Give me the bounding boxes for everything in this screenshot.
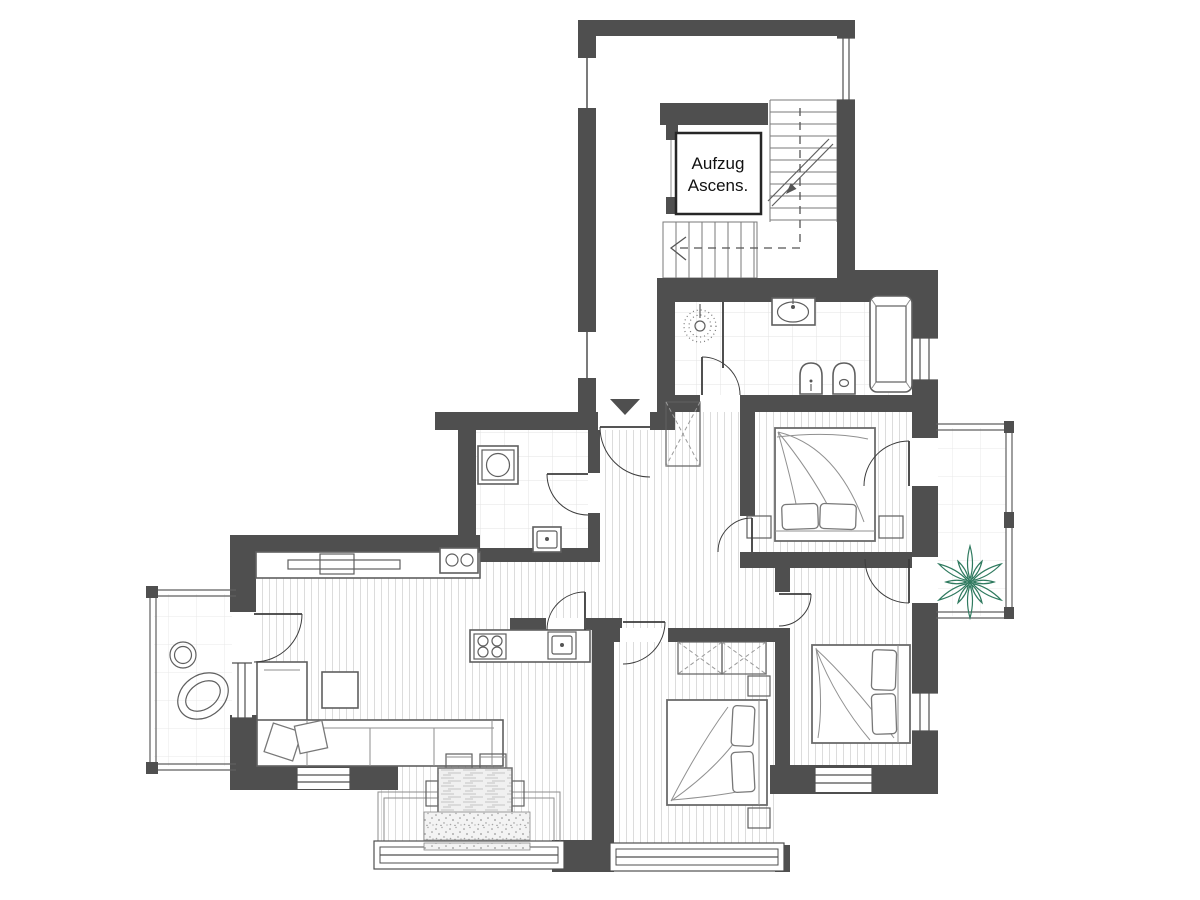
toilet-icon (800, 363, 822, 394)
elevator-label-line2: Ascens. (688, 176, 748, 195)
elevator-shaft-wall (660, 103, 768, 125)
window-sofa-wall (297, 768, 350, 789)
wall-stair-top (578, 20, 855, 36)
wall-stair-left-b (578, 108, 596, 332)
utility-sink (533, 527, 561, 552)
rug (424, 812, 530, 840)
opening-bathroom (700, 395, 740, 412)
bathroom-sink (772, 298, 815, 325)
railing-post-middle (1004, 512, 1014, 528)
wall-bathroom-north (657, 278, 855, 302)
pillow (871, 694, 896, 735)
opening-living (546, 618, 586, 630)
pillow (820, 503, 857, 529)
railing-post-top (1004, 421, 1014, 433)
window-band-bedroom3-south (610, 843, 784, 871)
elevator-cab (676, 133, 761, 214)
side-table (322, 672, 358, 708)
hob-two-burner (440, 548, 478, 573)
railing-post-bottom (1004, 607, 1014, 619)
stair-flight-vertical (770, 100, 837, 222)
stairwell: Aufzug Ascens. (660, 100, 837, 278)
window-bathroom-east (912, 338, 938, 380)
pillow (782, 503, 819, 529)
opening-balcony-left (232, 612, 252, 663)
stair-flight-horizontal (663, 222, 757, 278)
railing-post-bottomleft (146, 762, 158, 774)
dining-table (438, 768, 512, 815)
rug-band (424, 843, 530, 850)
wall-bathroom-west (657, 302, 675, 395)
wall-stair-left-a (578, 20, 596, 58)
bed-bedroom2 (812, 645, 910, 743)
bathtub (870, 296, 912, 392)
opening-balcony-bedroom2 (912, 557, 938, 603)
wall-bedroom3-west (592, 628, 614, 872)
window-balcony-left-wall (232, 663, 252, 718)
wall-bedroom1-south (740, 552, 912, 568)
railing-post-topleft (146, 586, 158, 598)
bidet-icon (833, 363, 855, 394)
window-bedroom2-south (815, 768, 872, 792)
pillow (731, 751, 755, 792)
sofa-pillow-2 (294, 720, 327, 753)
opening-bedroom2 (775, 592, 790, 628)
elevator-label-line1: Aufzug (692, 154, 745, 173)
floor-plan: Aufzug Ascens. (0, 0, 1200, 900)
window-stair-right (837, 38, 855, 100)
opening-utility (588, 473, 600, 513)
pillow (871, 650, 896, 691)
window-bedroom2-east (912, 693, 938, 731)
balcony-left-floor (154, 594, 234, 766)
pillow (731, 705, 755, 746)
opening-balcony-bedroom1 (912, 438, 938, 486)
washing-machine (478, 446, 518, 484)
